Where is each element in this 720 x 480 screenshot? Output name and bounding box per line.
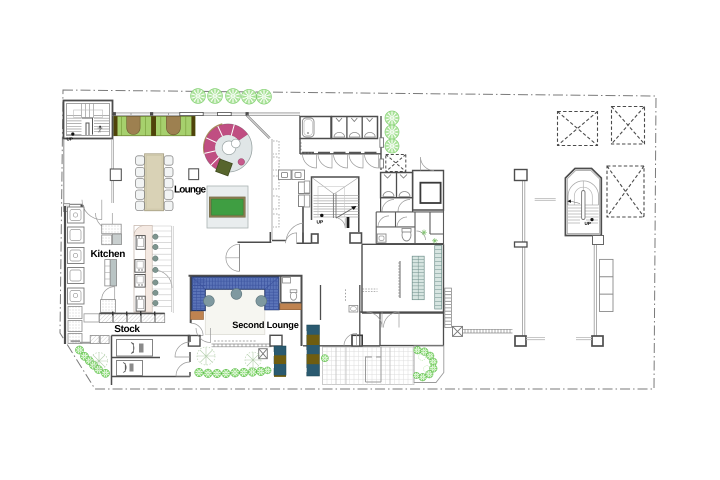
svg-text:UP: UP bbox=[317, 220, 324, 226]
svg-text:Stock: Stock bbox=[114, 324, 140, 335]
svg-text:UP: UP bbox=[585, 221, 591, 226]
svg-text:Kitchen: Kitchen bbox=[91, 249, 126, 260]
svg-text:Lounge: Lounge bbox=[174, 184, 207, 195]
svg-text:UP: UP bbox=[67, 137, 73, 142]
svg-text:Second Lounge: Second Lounge bbox=[232, 320, 298, 330]
